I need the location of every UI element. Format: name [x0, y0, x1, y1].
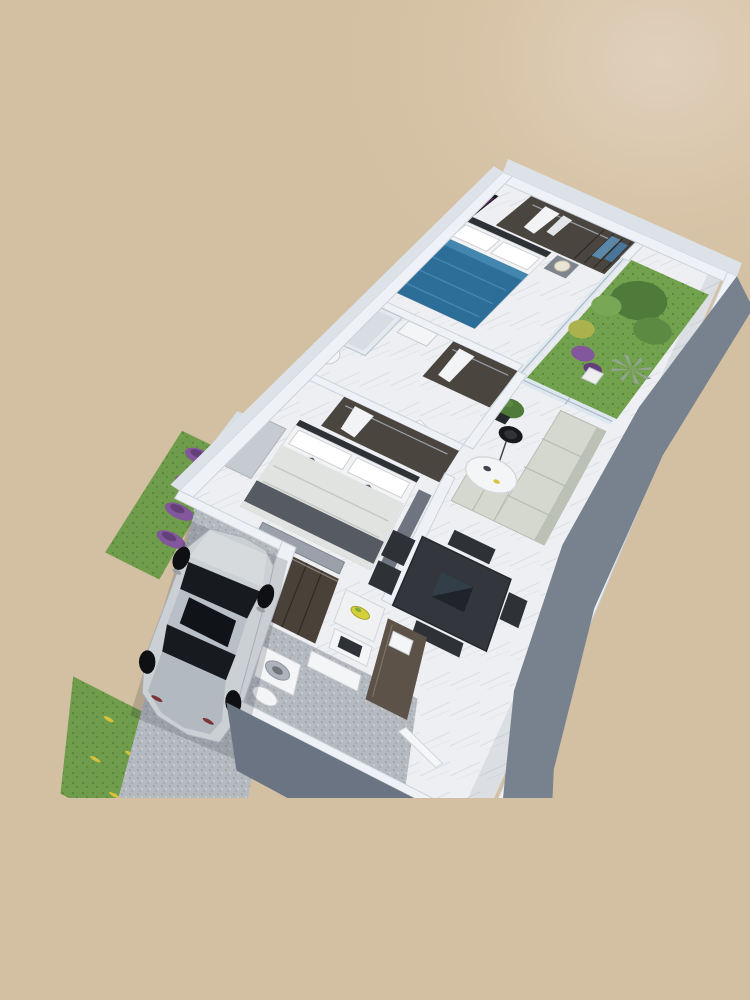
photo-crop-left	[0, 0, 6, 1000]
floor-plan-render	[0, 0, 750, 1000]
photo-crop-mask	[0, 798, 750, 1000]
master-lamp-shade	[554, 261, 570, 272]
floor-plan-scene	[0, 0, 750, 1000]
car-wheel-rl	[139, 650, 156, 673]
